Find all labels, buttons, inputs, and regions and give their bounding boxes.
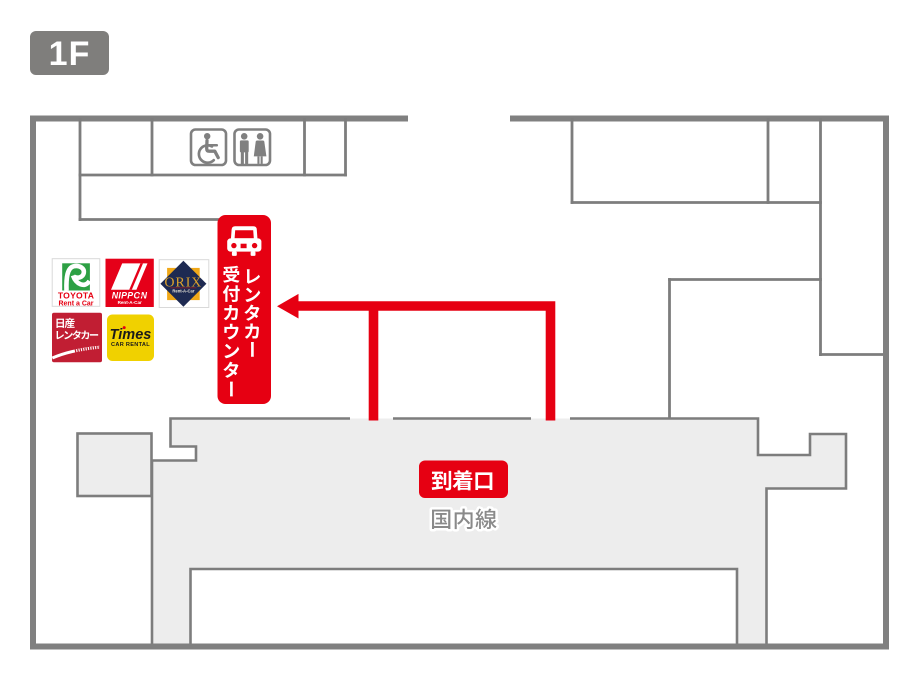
svg-text:Rent a Car: Rent a Car bbox=[58, 300, 93, 307]
svg-text:CAR RENTAL: CAR RENTAL bbox=[111, 342, 150, 348]
svg-text:Times: Times bbox=[110, 327, 152, 343]
svg-text:1F: 1F bbox=[49, 35, 91, 73]
svg-text:TOYOTA: TOYOTA bbox=[58, 291, 94, 301]
svg-text:Rent-A-Car: Rent-A-Car bbox=[118, 300, 142, 305]
svg-text:NIPPON: NIPPON bbox=[112, 291, 148, 301]
svg-text:Rent-A-Car: Rent-A-Car bbox=[172, 288, 194, 293]
svg-text:ORIX: ORIX bbox=[165, 274, 203, 289]
